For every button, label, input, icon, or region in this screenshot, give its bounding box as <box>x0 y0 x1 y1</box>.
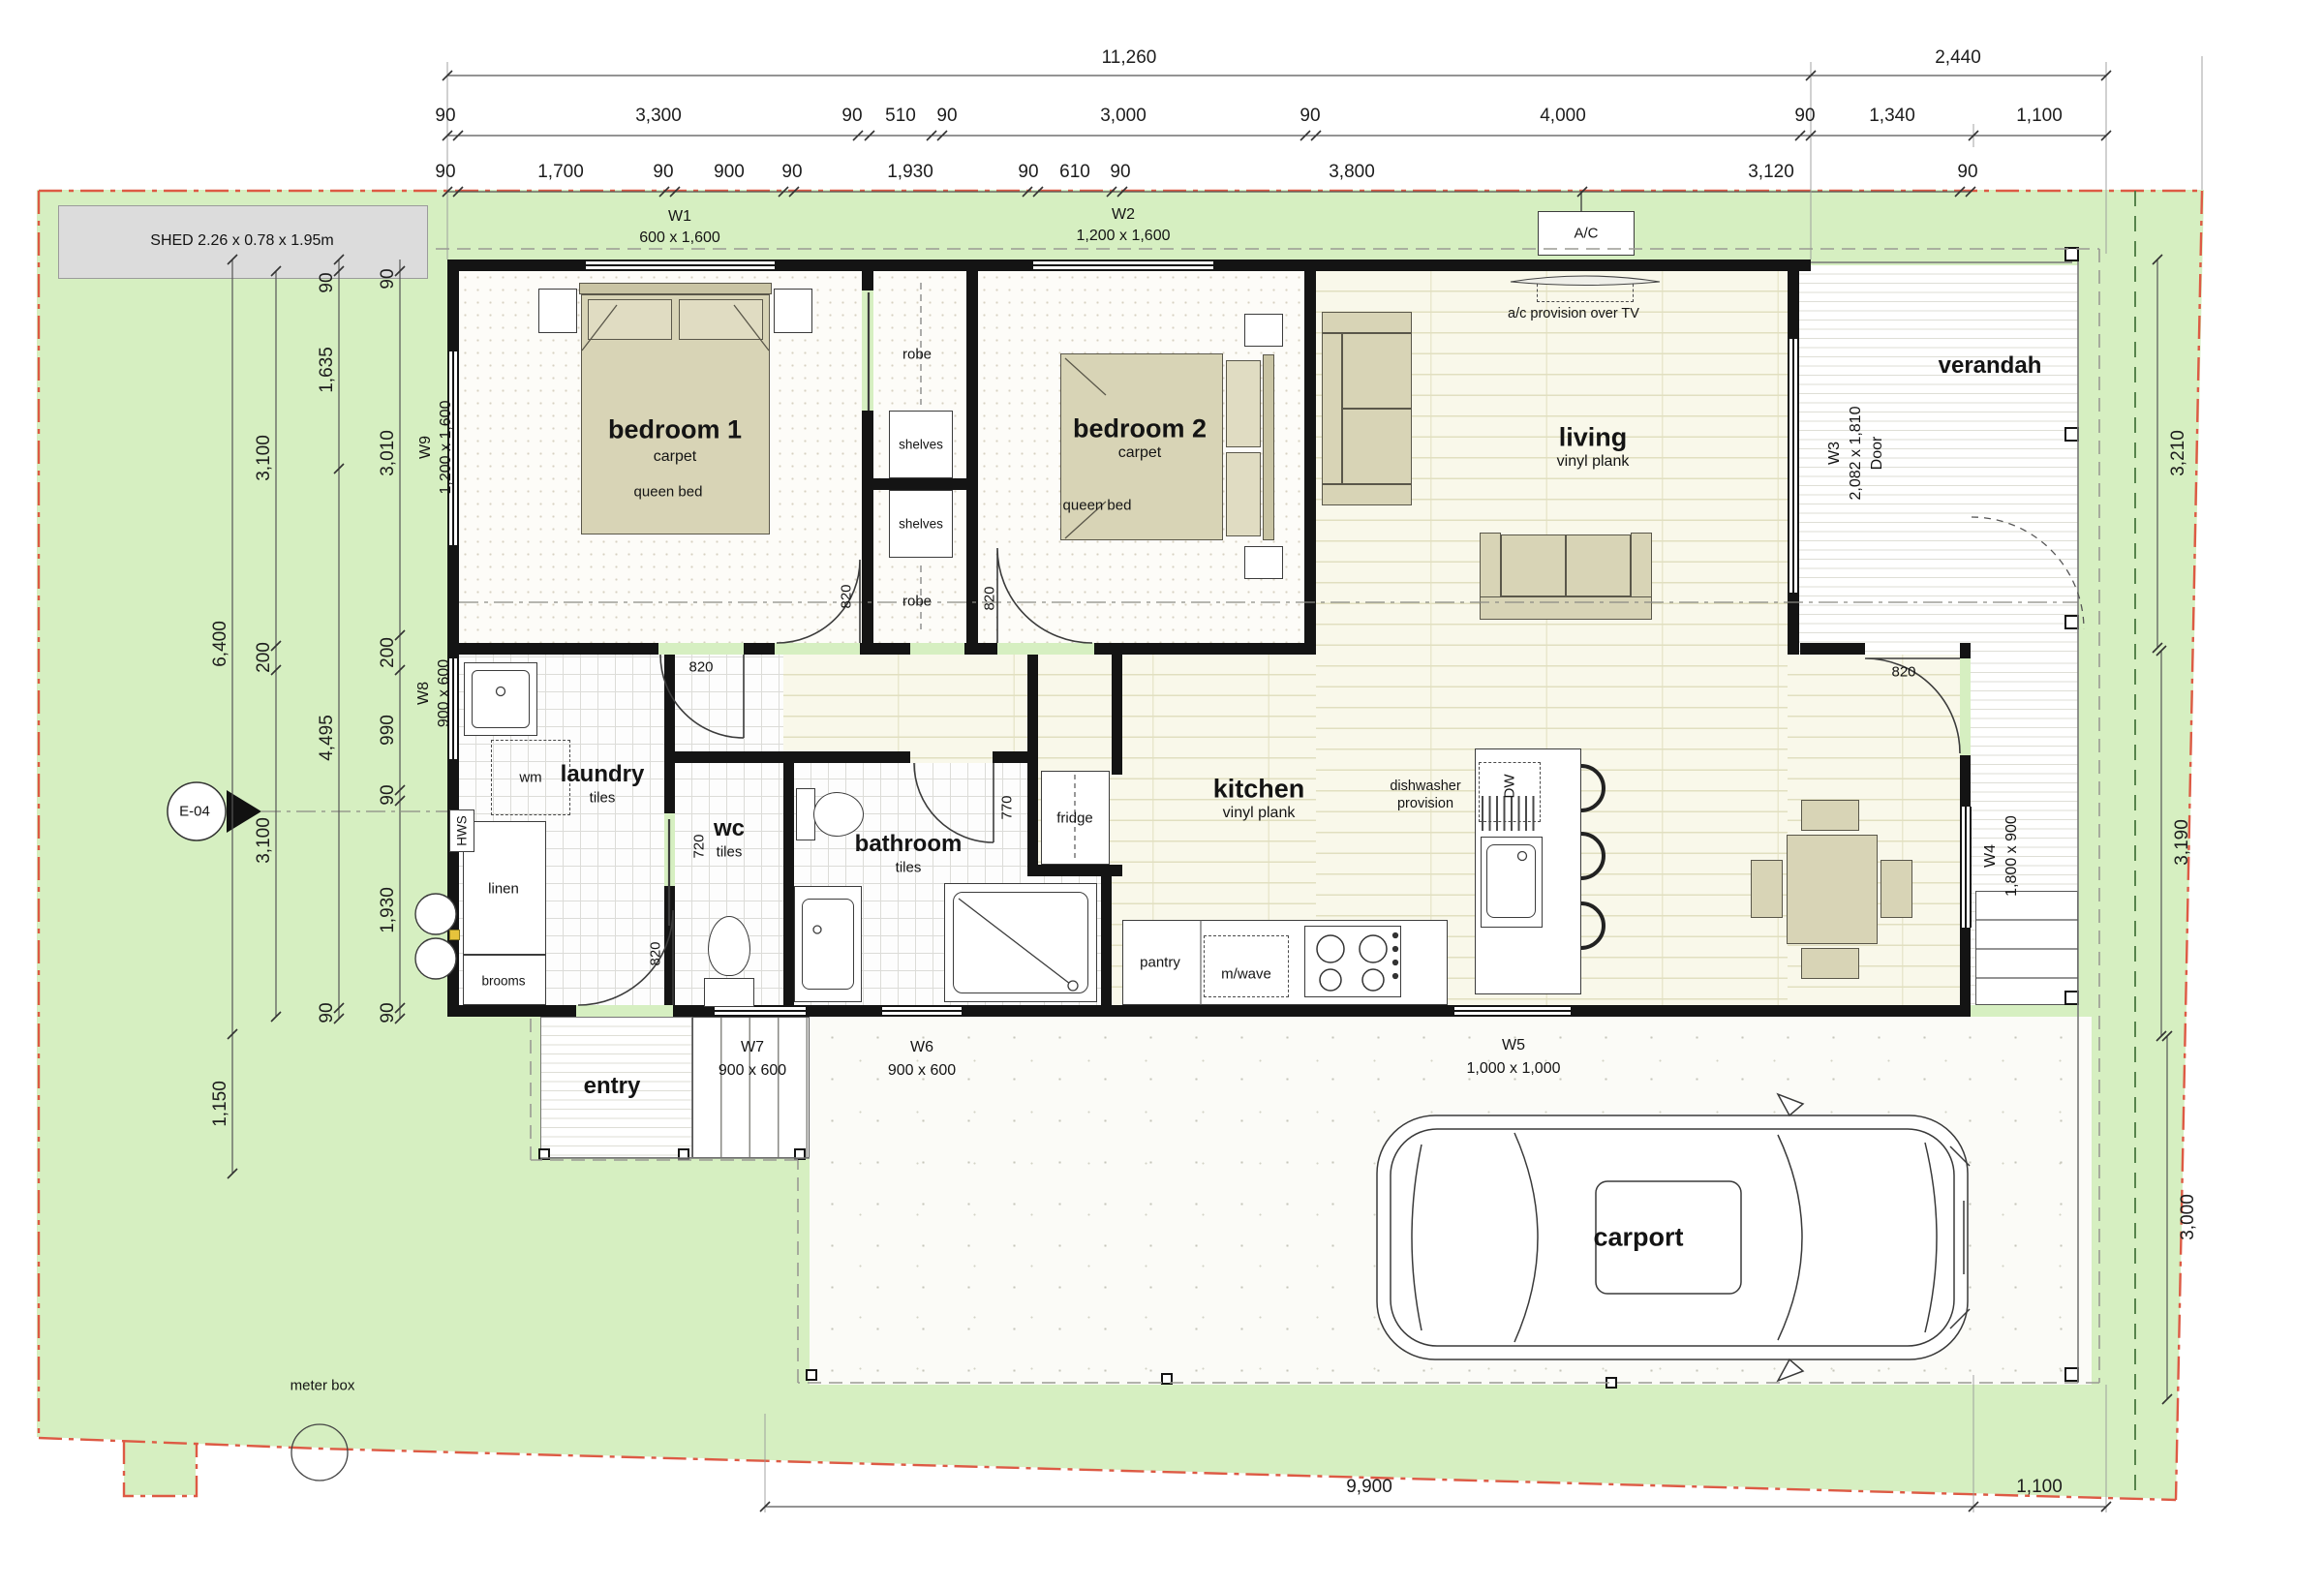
dim-right: 3,210 <box>2168 430 2189 476</box>
door-label-820: 820 <box>839 584 855 608</box>
label-ac-unit: A/C <box>1574 226 1598 242</box>
label-brooms: brooms <box>481 974 525 989</box>
wall <box>860 643 910 655</box>
label-shed: SHED 2.26 x 0.78 x 1.95m <box>150 232 333 250</box>
dim-rowB: 1,340 <box>1869 106 1915 127</box>
label-section-marker: E-04 <box>179 804 210 820</box>
window-label-w6-size: 900 x 600 <box>888 1062 956 1080</box>
wall <box>966 271 978 643</box>
wall <box>1571 1005 1971 1017</box>
wall <box>1960 643 1971 658</box>
window-label-w3-type: Door <box>1869 437 1886 471</box>
wall <box>1304 260 1316 655</box>
label-kitchen: kitchen <box>1213 775 1305 805</box>
bed1-side-table <box>774 289 812 333</box>
porch-post <box>794 1148 806 1160</box>
label-bedroom2: bedroom 2 <box>1073 414 1207 444</box>
verandah-steps <box>1975 891 2078 1005</box>
dim-left: 90 <box>317 272 338 292</box>
wall <box>1112 655 1122 775</box>
dim-rowC: 90 <box>781 162 802 183</box>
window-w4 <box>1960 807 1972 928</box>
wall <box>1960 755 1971 807</box>
carport-slab <box>810 1017 2092 1385</box>
dim-left: 990 <box>378 715 399 746</box>
dim-left: 1,150 <box>210 1081 231 1127</box>
dim-left: 3,100 <box>254 817 275 864</box>
wall <box>1027 865 1122 876</box>
wall <box>744 643 775 655</box>
label-robe-lower: robe <box>902 594 932 610</box>
door-label-820: 820 <box>688 659 713 676</box>
wall <box>806 1005 882 1017</box>
dim-rowB: 90 <box>1300 106 1320 127</box>
dim-rowC: 1,930 <box>887 162 933 183</box>
dim-rowB: 90 <box>435 106 455 127</box>
window-label-w8-size: 900 x 600 <box>436 659 453 727</box>
wall <box>1101 876 1112 1005</box>
wall <box>447 759 459 1017</box>
dim-left: 90 <box>378 1002 399 1023</box>
wall <box>862 478 978 490</box>
dim-rowB: 1,100 <box>2016 106 2063 127</box>
dim-rowB: 3,000 <box>1100 106 1147 127</box>
wc-toilet-bowl <box>708 916 750 976</box>
label-bathroom-floor: tiles <box>896 860 922 876</box>
label-shelves-lower: shelves <box>899 517 943 532</box>
label-wc-floor: tiles <box>717 844 743 861</box>
dim-rowC: 1,700 <box>537 162 584 183</box>
window-label-w3-size: 2,082 x 1,810 <box>1848 407 1865 501</box>
dim-left: 3,010 <box>378 430 399 476</box>
wall <box>1960 928 1971 1017</box>
label-carport: carport <box>1593 1223 1683 1253</box>
sofa2-cushion <box>1501 534 1566 596</box>
porch-post <box>538 1148 550 1160</box>
wall <box>1800 643 1865 655</box>
bed2-headboard <box>1263 354 1274 540</box>
window-label-w9-id: W9 <box>417 436 435 459</box>
wall <box>447 643 658 655</box>
verandah-post <box>2064 247 2079 261</box>
sofa2-cushion <box>1566 534 1631 596</box>
window-label-w5-size: 1,000 x 1,000 <box>1467 1060 1561 1078</box>
island-sink-basin <box>1486 844 1536 918</box>
shower-base <box>953 892 1088 993</box>
wall <box>447 1005 576 1017</box>
dim-left: 3,100 <box>254 435 275 481</box>
window-label-w1-size: 600 x 1,600 <box>639 229 720 247</box>
label-wm: wm <box>519 770 541 786</box>
verandah-post <box>2064 427 2079 442</box>
label-dw: DW <box>1502 775 1518 799</box>
window-label-w9-size: 1,200 x 1,600 <box>438 401 455 495</box>
door-label-770: 770 <box>999 795 1016 819</box>
dim-left: 90 <box>378 268 399 289</box>
window-w2 <box>1033 260 1213 271</box>
dim-left: 200 <box>254 642 275 673</box>
porch-post <box>678 1148 689 1160</box>
wall <box>1027 655 1038 876</box>
dim-rowB: 3,300 <box>635 106 682 127</box>
door-label-820: 820 <box>982 586 998 610</box>
label-bedroom1-bed: queen bed <box>634 484 703 501</box>
carport-post <box>806 1369 817 1381</box>
label-bedroom1: bedroom 1 <box>608 415 742 445</box>
sofa-cushion <box>1342 409 1412 484</box>
bed2-pillow <box>1226 452 1261 536</box>
dim-verandah-width: 2,440 <box>1935 47 1981 69</box>
wall <box>447 260 459 351</box>
label-pantry: pantry <box>1140 955 1180 971</box>
dim-left: 90 <box>317 1002 338 1023</box>
bed1-headboard <box>579 283 772 294</box>
window-label-w7-id: W7 <box>741 1039 764 1056</box>
wall <box>862 411 873 643</box>
wall <box>1094 643 1316 655</box>
dining-chair <box>1801 948 1859 979</box>
wall <box>962 1005 1454 1017</box>
dim-rowB: 90 <box>936 106 957 127</box>
label-robe-upper: robe <box>902 347 932 363</box>
dim-bottom: 1,100 <box>2016 1477 2063 1498</box>
window-label-w2-size: 1,200 x 1,600 <box>1077 228 1171 245</box>
label-kitchen-floor: vinyl plank <box>1223 805 1296 822</box>
window-label-w2-id: W2 <box>1112 206 1135 224</box>
dining-table <box>1787 835 1878 944</box>
window-label-w3-id: W3 <box>1826 442 1844 465</box>
dim-left: 6,400 <box>210 621 231 667</box>
bed1-pillow <box>679 299 763 340</box>
dim-rowB: 4,000 <box>1540 106 1586 127</box>
bed1-side-table <box>538 289 577 333</box>
dining-chair <box>1751 860 1783 918</box>
label-bedroom2-bed: queen bed <box>1063 498 1132 514</box>
window-w6 <box>882 1005 962 1017</box>
wall <box>862 271 873 290</box>
bed2-pillow <box>1226 360 1261 447</box>
floor-plan-page: 11,260 2,440 90 3,300 90 510 90 3,000 90… <box>0 0 2324 1588</box>
window-w1 <box>586 260 775 271</box>
sofa-back <box>1322 333 1342 484</box>
dim-rowC: 610 <box>1059 162 1090 183</box>
dim-left: 90 <box>378 784 399 805</box>
door-label-820: 820 <box>648 941 664 965</box>
verandah-post <box>2064 991 2079 1005</box>
wall <box>964 643 997 655</box>
cooktop <box>1304 926 1401 997</box>
sofa2-back <box>1480 596 1652 620</box>
label-bedroom2-floor: carpet <box>1118 444 1161 462</box>
window-w5 <box>1454 1005 1571 1017</box>
wall <box>447 545 459 658</box>
window-label-w8-id: W8 <box>415 682 433 705</box>
wall <box>1213 260 1811 271</box>
label-wc: wc <box>714 815 745 842</box>
dim-rowC: 3,800 <box>1329 162 1375 183</box>
bed2-side-table <box>1244 314 1283 347</box>
label-verandah: verandah <box>1939 352 2042 380</box>
bed2-side-table <box>1244 546 1283 579</box>
verandah-post <box>2064 615 2079 629</box>
wall <box>1788 260 1799 339</box>
wall <box>664 886 675 1005</box>
label-dw-provision: dishwasher provision <box>1362 778 1488 812</box>
bed1-pillow <box>588 299 672 340</box>
dim-left: 1,930 <box>378 887 399 933</box>
dim-left: 1,635 <box>317 347 338 393</box>
label-microwave: m/wave <box>1221 966 1271 983</box>
dim-left: 200 <box>378 637 399 668</box>
window-label-w4-id: W4 <box>1982 844 2000 868</box>
label-laundry: laundry <box>561 761 645 788</box>
sofa-arm <box>1322 484 1412 505</box>
window-door-w3 <box>1788 339 1799 593</box>
wc-cistern <box>704 978 754 1007</box>
wall <box>447 260 586 271</box>
dim-rowC: 90 <box>1957 162 1977 183</box>
vanity-basin <box>802 899 854 990</box>
label-bathroom: bathroom <box>855 831 963 858</box>
wall <box>1788 593 1799 655</box>
window-label-w4-size: 1,800 x 900 <box>2003 815 2021 897</box>
dining-chair <box>1881 860 1912 918</box>
door-label-720: 720 <box>691 834 708 858</box>
dim-rowB: 510 <box>885 106 916 127</box>
ac-provision-box <box>1537 279 1634 302</box>
window-label-w5-id: W5 <box>1502 1037 1525 1054</box>
window-label-w6-id: W6 <box>910 1039 933 1056</box>
dim-rowC: 3,120 <box>1748 162 1794 183</box>
dim-overall-width: 11,260 <box>1102 47 1157 69</box>
label-shelves-upper: shelves <box>899 438 943 452</box>
wall <box>675 751 910 763</box>
dim-rowB: 90 <box>841 106 862 127</box>
label-living: living <box>1559 423 1628 453</box>
window-label-w1-id: W1 <box>668 208 691 226</box>
wall <box>664 655 675 813</box>
label-ac-provision: a/c provision over TV <box>1508 306 1639 321</box>
carport-post <box>2064 1367 2079 1382</box>
door-label-820: 820 <box>1891 664 1915 681</box>
label-laundry-floor: tiles <box>590 790 616 807</box>
label-meter-box: meter box <box>290 1378 355 1394</box>
dim-rowC: 90 <box>1110 162 1130 183</box>
hws-valve <box>449 930 460 940</box>
dim-rowC: 90 <box>1018 162 1038 183</box>
sofa-cushion <box>1342 333 1412 409</box>
dim-rowC: 90 <box>653 162 673 183</box>
label-hws: HWS <box>455 815 470 846</box>
wall <box>775 260 1033 271</box>
carport-post <box>1605 1377 1617 1389</box>
w7-panel <box>692 1017 810 1158</box>
laundry-tub-basin <box>472 670 530 728</box>
label-entry: entry <box>584 1073 641 1100</box>
dim-bottom: 9,900 <box>1346 1477 1392 1498</box>
label-fridge: fridge <box>1056 810 1093 827</box>
dining-chair <box>1801 800 1859 831</box>
dim-rowC: 900 <box>714 162 745 183</box>
dishwasher-hatch <box>1482 796 1538 831</box>
label-linen: linen <box>488 881 519 898</box>
dim-rowC: 90 <box>435 162 455 183</box>
dim-left: 4,495 <box>317 715 338 761</box>
label-bedroom1-floor: carpet <box>654 448 696 466</box>
wall <box>783 763 794 1005</box>
sofa-arm <box>1322 312 1412 333</box>
window-label-w7-size: 900 x 600 <box>719 1062 786 1080</box>
bath-cistern <box>796 788 815 840</box>
carport-post <box>1161 1373 1173 1385</box>
dim-right: 3,000 <box>2178 1194 2199 1240</box>
label-living-floor: vinyl plank <box>1557 453 1630 471</box>
dim-rowB: 90 <box>1794 106 1815 127</box>
dim-right: 3,190 <box>2172 819 2193 866</box>
